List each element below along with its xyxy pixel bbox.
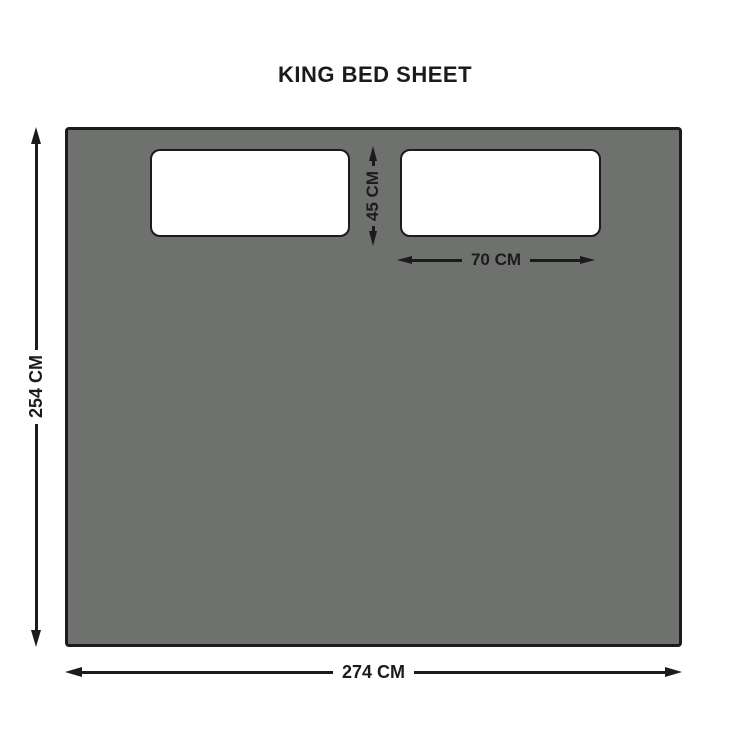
pillow-cutout-right [400,149,601,237]
arrowhead-right-icon [665,667,682,677]
dim-sheet-width-label: 274 CM [342,662,405,683]
dim-line [35,144,38,350]
dim-line [35,424,38,630]
dim-sheet-height-label: 254 CM [26,355,47,418]
diagram-canvas: KING BED SHEET 254 CM 274 CM 45 CM 70 CM [0,0,750,750]
arrowhead-right-icon [580,256,595,264]
dim-sheet-width: 274 CM [65,659,682,685]
arrowhead-left-icon [397,256,412,264]
dim-pillow-height: 45 CM [360,146,386,246]
arrowhead-up-icon [369,146,377,161]
pillow-cutout-left [150,149,350,237]
dim-sheet-height: 254 CM [23,127,49,647]
arrowhead-left-icon [65,667,82,677]
dim-line [414,671,665,674]
dim-pillow-width-label: 70 CM [471,250,521,270]
arrowhead-up-icon [31,127,41,144]
dim-line [412,259,462,262]
dim-line [82,671,333,674]
diagram-title: KING BED SHEET [0,62,750,88]
dim-pillow-height-label: 45 CM [363,171,383,221]
dim-line [372,161,375,166]
dim-pillow-width: 70 CM [397,247,595,273]
dim-line [530,259,580,262]
arrowhead-down-icon [31,630,41,647]
arrowhead-down-icon [369,231,377,246]
